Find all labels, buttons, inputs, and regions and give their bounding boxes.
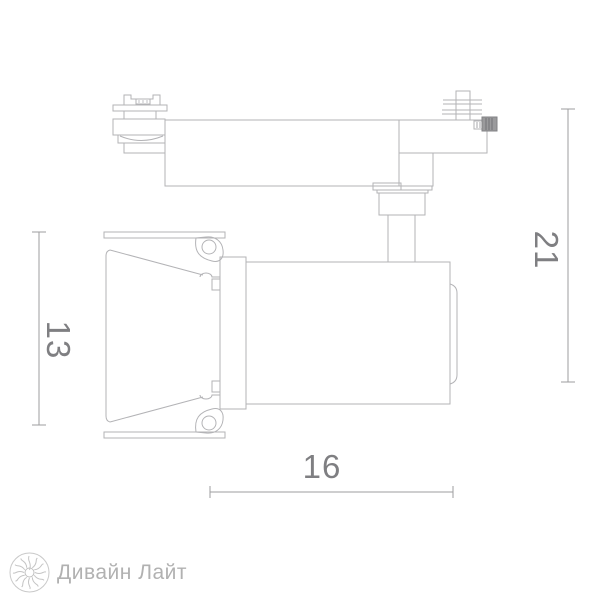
shade-lug-top	[196, 237, 224, 262]
track-adapter	[165, 120, 487, 186]
product-drawing-page: 13 21 16 Дивайн	[0, 0, 601, 601]
sunburst-logo-icon	[8, 551, 51, 594]
dimension-lines	[32, 109, 575, 498]
dimension-line-body-length	[210, 486, 453, 498]
brand-watermark: Дивайн Лайт	[8, 551, 187, 594]
dimension-label-shade-height: 13	[39, 321, 77, 360]
dimension-label-body-length: 16	[303, 448, 342, 486]
adapter-stem	[373, 183, 432, 262]
track-screw-right	[442, 91, 497, 131]
fixture-technical-drawing	[0, 0, 601, 601]
lamp-rear-bracket	[450, 284, 457, 384]
lamp-shade	[104, 232, 225, 438]
track-contact-left	[113, 95, 167, 153]
dimension-label-overall-height: 21	[527, 231, 565, 270]
lamp-body	[212, 257, 457, 409]
shade-lug-bottom	[196, 409, 224, 434]
brand-name: Дивайн Лайт	[57, 561, 187, 585]
